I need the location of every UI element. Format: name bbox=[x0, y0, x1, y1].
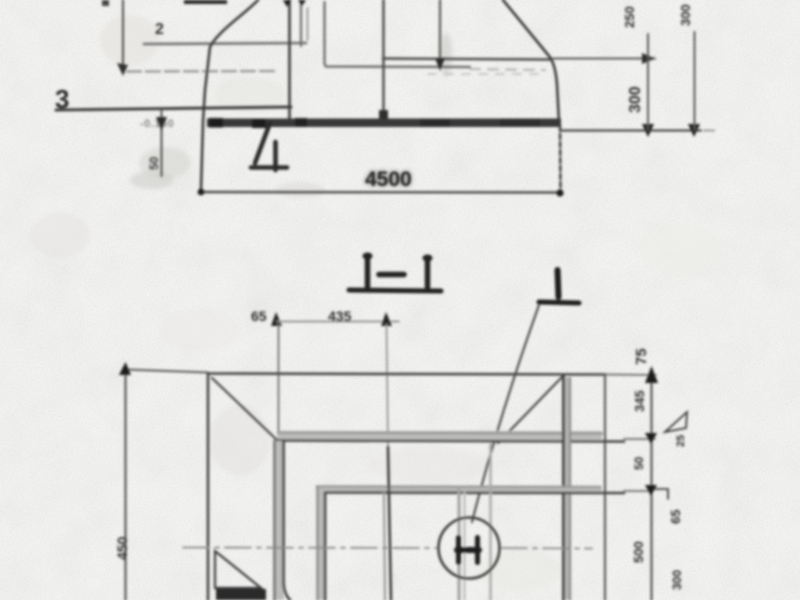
svg-text:300: 300 bbox=[627, 86, 644, 113]
svg-text:4500: 4500 bbox=[365, 168, 412, 191]
svg-text:2: 2 bbox=[155, 21, 164, 38]
svg-text:250: 250 bbox=[622, 6, 637, 28]
svg-text:75: 75 bbox=[633, 348, 650, 365]
svg-text:300: 300 bbox=[670, 570, 684, 590]
svg-text:65: 65 bbox=[251, 308, 267, 324]
svg-text:450: 450 bbox=[114, 536, 130, 560]
svg-text:50: 50 bbox=[632, 456, 646, 470]
svg-text:345: 345 bbox=[632, 390, 647, 412]
svg-text:25: 25 bbox=[675, 435, 687, 447]
svg-text:500: 500 bbox=[631, 541, 646, 563]
svg-text:435: 435 bbox=[328, 308, 352, 324]
svg-text:50: 50 bbox=[147, 156, 161, 170]
svg-text:300: 300 bbox=[678, 4, 693, 26]
svg-text:65: 65 bbox=[668, 510, 683, 524]
